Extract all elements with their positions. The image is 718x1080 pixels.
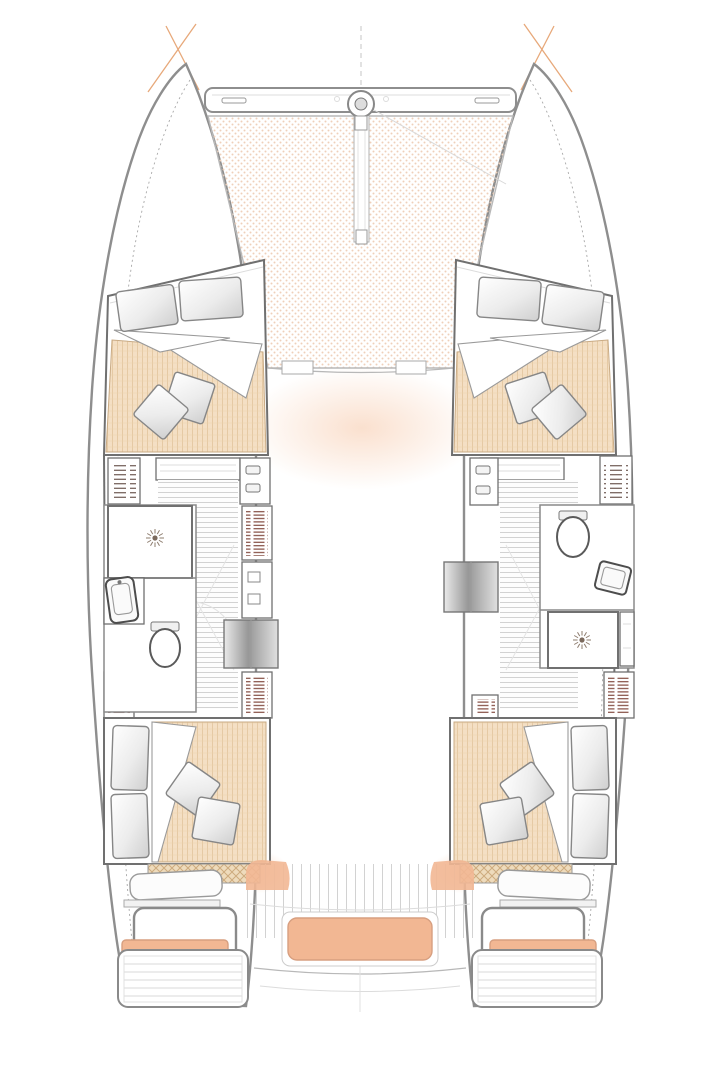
- pillow: [571, 725, 609, 790]
- handle-slot: [475, 98, 499, 103]
- bedside-shelf: [156, 458, 240, 480]
- head-starboard: [540, 505, 634, 668]
- deck-hatch: [282, 361, 313, 374]
- shelf-locker: [600, 456, 632, 504]
- wardrobe-louver: [472, 695, 498, 718]
- handle-slot: [222, 98, 246, 103]
- swim-platform-port: [118, 950, 248, 1007]
- outer-louver-locker: [604, 672, 634, 718]
- pillow: [477, 277, 542, 321]
- sink-icon: [104, 576, 144, 624]
- locker-handles: [240, 458, 270, 504]
- pillow: [111, 725, 149, 790]
- aft-cabin-port: [104, 718, 270, 864]
- center-bench: [282, 912, 438, 966]
- cabinet: [620, 612, 634, 666]
- throw-pillow: [192, 797, 241, 846]
- side-step-port: [246, 860, 290, 890]
- pillow: [111, 793, 149, 858]
- toilet-icon: [557, 511, 589, 557]
- locker-handles: [470, 458, 498, 505]
- wardrobe-louver: [242, 672, 272, 718]
- pillow: [541, 284, 604, 332]
- throw-pillow: [480, 797, 529, 846]
- companionway-steps-port: [224, 620, 278, 668]
- shower-stall: [108, 506, 192, 578]
- toilet-icon: [150, 622, 180, 667]
- pillow: [115, 284, 178, 332]
- swim-platform-starboard: [472, 950, 602, 1007]
- pillow: [571, 793, 609, 858]
- center-bench-cushion: [288, 918, 432, 960]
- pillow: [179, 277, 244, 321]
- bow-guide-marks: [148, 24, 572, 92]
- shelf-locker: [108, 458, 140, 504]
- head-port: [104, 505, 196, 712]
- deck-hatch: [396, 361, 426, 374]
- companionway-steps-starboard: [444, 562, 498, 612]
- aft-cabin-starboard: [450, 718, 616, 864]
- side-step-starboard: [430, 860, 474, 890]
- bowsprit: [354, 114, 369, 244]
- wardrobe-louver: [242, 506, 272, 560]
- floor-plan: [0, 0, 718, 1080]
- locker-squares: [242, 562, 272, 618]
